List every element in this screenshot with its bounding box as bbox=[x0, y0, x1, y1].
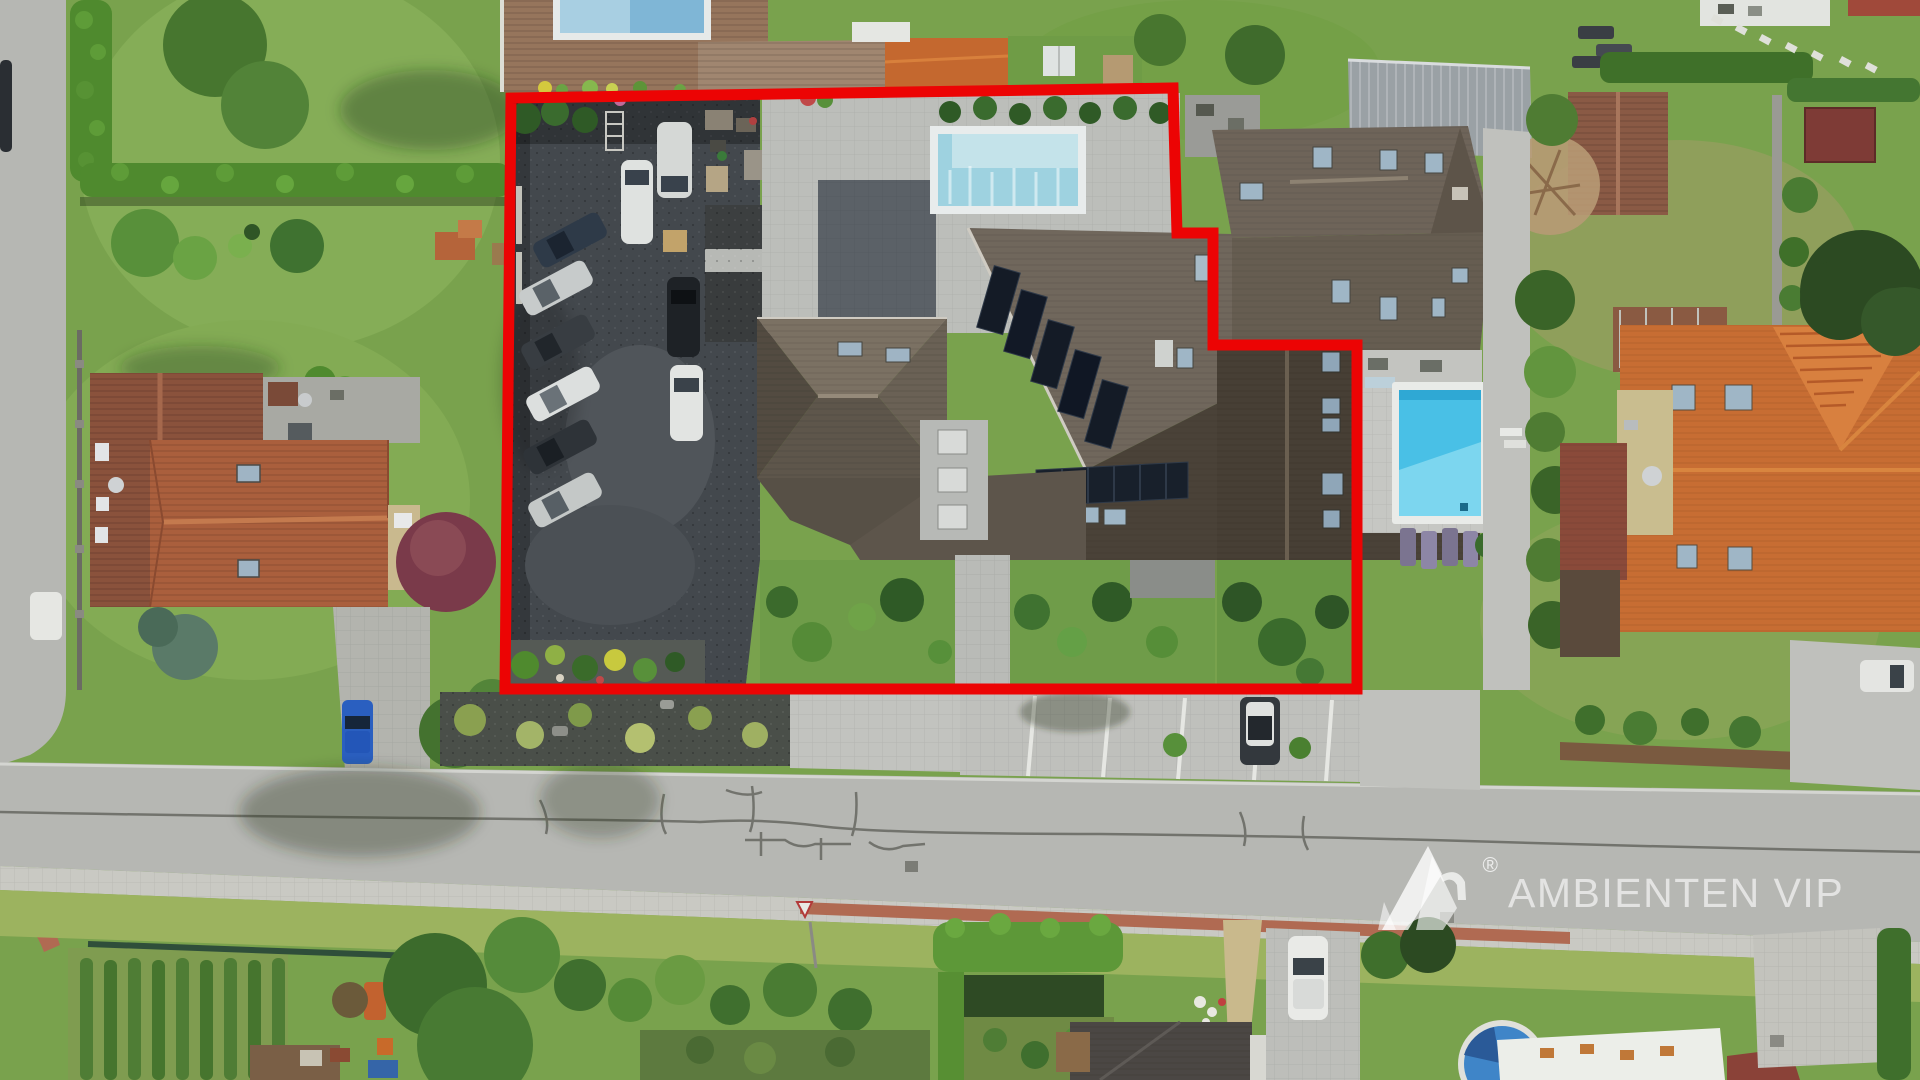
skylight bbox=[886, 348, 910, 362]
skylight bbox=[838, 342, 862, 356]
hedge-row bbox=[1600, 52, 1813, 83]
skylight bbox=[1725, 385, 1752, 410]
right-section-garden bbox=[1217, 560, 1357, 690]
white-pavilion bbox=[852, 22, 910, 42]
maroon-shed-roof bbox=[1805, 108, 1875, 162]
skylight bbox=[1380, 297, 1397, 320]
bottom-flowerbed bbox=[505, 640, 705, 690]
skylight bbox=[237, 465, 260, 482]
skylight bbox=[1322, 418, 1340, 432]
skylight bbox=[1322, 398, 1340, 414]
skylight bbox=[1313, 147, 1332, 168]
hedge-row bbox=[1787, 78, 1920, 102]
main-pool bbox=[930, 126, 1086, 214]
skylight bbox=[1322, 352, 1340, 372]
dark-shingle-roof-bottom bbox=[1056, 1022, 1272, 1080]
parked-car-street-bay bbox=[1240, 697, 1280, 765]
skylight bbox=[1432, 298, 1445, 317]
skylight bbox=[238, 560, 259, 577]
chimney bbox=[1155, 340, 1173, 367]
bottom-right-driveway bbox=[1753, 928, 1911, 1080]
side-driveway bbox=[1483, 128, 1530, 690]
skylight bbox=[1425, 153, 1443, 173]
thuja-hedge-horizontal bbox=[80, 163, 510, 197]
garden-shed bbox=[1103, 55, 1133, 86]
skylight bbox=[1322, 473, 1343, 495]
skylight bbox=[1332, 280, 1350, 303]
skylight bbox=[1452, 268, 1468, 283]
tall-hedge bbox=[1877, 928, 1911, 1080]
tall-pole bbox=[1772, 95, 1782, 345]
tree-shadow-on-road bbox=[240, 767, 480, 857]
neighbor-pool bbox=[1392, 382, 1488, 524]
white-car-bottom bbox=[1288, 936, 1328, 1020]
fence-line bbox=[77, 330, 82, 690]
bottom-driveway-car bbox=[1266, 928, 1360, 1080]
satellite-dish-icon bbox=[1642, 466, 1662, 486]
left-road bbox=[0, 0, 66, 765]
left-house-lower-roof bbox=[150, 440, 420, 607]
parked-dark-car-left bbox=[0, 60, 12, 152]
parked-white-car-left bbox=[30, 592, 62, 640]
skylight bbox=[1240, 183, 1263, 200]
satellite-dish-icon bbox=[108, 477, 124, 493]
courtyard-wall-windows bbox=[920, 420, 988, 540]
skylight bbox=[1728, 547, 1752, 570]
aerial-photo: ® AMBIENTEN VIP bbox=[0, 0, 1920, 1080]
skylight bbox=[1323, 510, 1340, 528]
skylight bbox=[1677, 545, 1697, 568]
skylight bbox=[1672, 385, 1695, 410]
skylight bbox=[1104, 509, 1126, 525]
blue-car bbox=[342, 700, 373, 764]
aerial-scene bbox=[0, 0, 1920, 1080]
left-house-courtyard bbox=[263, 377, 420, 443]
skylight bbox=[1177, 348, 1193, 368]
sand-patch bbox=[663, 230, 687, 252]
right-wing-gable-roof bbox=[1217, 345, 1357, 560]
skylight bbox=[1380, 150, 1397, 170]
street-drain bbox=[905, 861, 918, 872]
